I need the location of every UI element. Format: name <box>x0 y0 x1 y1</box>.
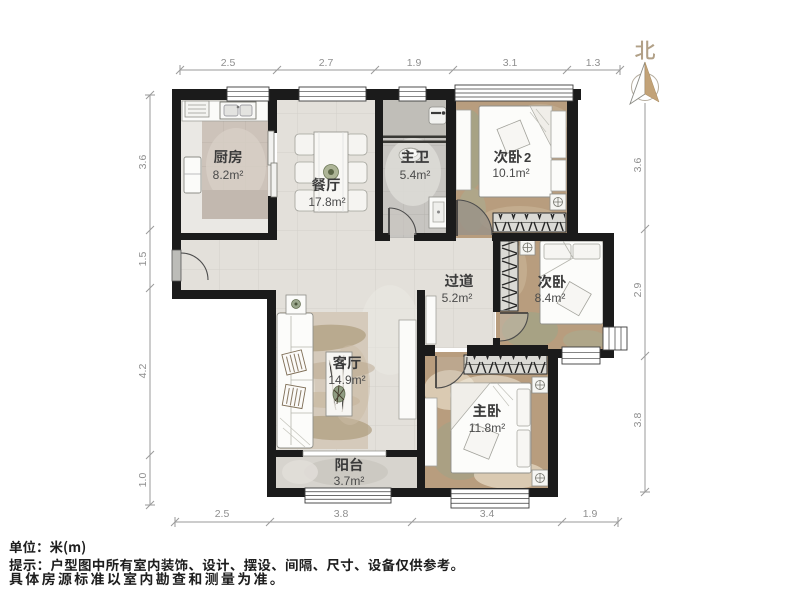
svg-text:8.4m²: 8.4m² <box>535 291 566 305</box>
svg-text:4.2: 4.2 <box>137 364 149 379</box>
svg-text:14.9m²: 14.9m² <box>328 373 365 387</box>
svg-text:3.6: 3.6 <box>632 158 644 173</box>
svg-text:2.5: 2.5 <box>215 508 230 520</box>
svg-text:2.9: 2.9 <box>632 283 644 298</box>
svg-text:3.7m²: 3.7m² <box>334 474 365 488</box>
svg-text:2: 2 <box>524 150 531 165</box>
svg-text:1.9: 1.9 <box>583 508 598 520</box>
svg-text:2.5: 2.5 <box>221 57 236 69</box>
svg-text:2.7: 2.7 <box>319 57 334 69</box>
svg-text:3.1: 3.1 <box>503 57 518 69</box>
svg-text:5.4m²: 5.4m² <box>400 168 431 182</box>
svg-text:1.0: 1.0 <box>137 473 149 488</box>
svg-text:1.3: 1.3 <box>586 57 601 69</box>
svg-text:8.2m²: 8.2m² <box>213 168 244 182</box>
svg-text:1.9: 1.9 <box>407 57 422 69</box>
svg-text:11.8m²: 11.8m² <box>469 421 505 435</box>
svg-text:3.8: 3.8 <box>334 508 349 520</box>
svg-text:3.6: 3.6 <box>137 155 149 170</box>
svg-text:17.8m²: 17.8m² <box>308 195 345 209</box>
svg-text:3.8: 3.8 <box>632 413 644 428</box>
svg-text:3.4: 3.4 <box>480 508 495 520</box>
svg-text:10.1m²: 10.1m² <box>492 166 529 180</box>
svg-text:5.2m²: 5.2m² <box>442 291 473 305</box>
svg-text:1.5: 1.5 <box>137 252 149 267</box>
